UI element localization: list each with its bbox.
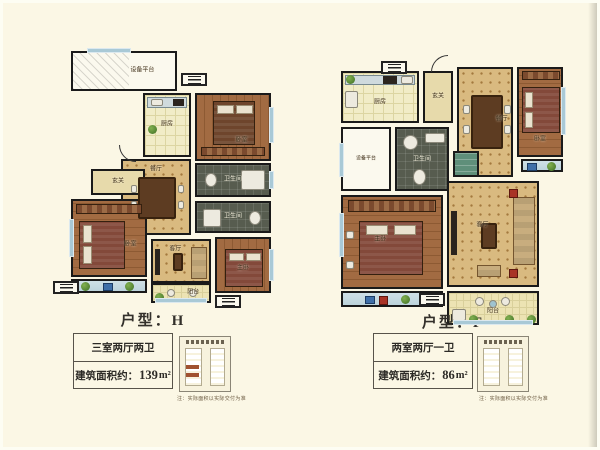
sink-icon	[401, 76, 413, 84]
chair-icon	[463, 105, 470, 114]
unit-location-chart-f	[477, 336, 529, 392]
room-foyer: 玄关	[423, 71, 453, 123]
flower-box	[71, 279, 147, 293]
pillow-icon	[525, 112, 533, 128]
spec-area: 建筑面积约：139m²	[74, 362, 172, 389]
bed-icon	[359, 221, 423, 275]
room-kitchen: 厨房	[143, 93, 191, 157]
room-living: 客厅	[151, 239, 211, 283]
room-label: 卧室	[125, 242, 137, 249]
room-label: 厨房	[161, 122, 173, 129]
shower-icon	[203, 209, 221, 227]
chair-icon	[178, 185, 184, 193]
decor-icon	[379, 296, 388, 305]
room-label: 设备平台	[356, 156, 376, 163]
room-label: 玄关	[112, 179, 124, 186]
decor-icon	[527, 163, 537, 171]
window-railing	[155, 298, 207, 303]
bathtub-icon	[241, 170, 265, 190]
disclaimer-note: 注：实际面积以实际交付为准	[479, 395, 548, 402]
wardrobe-icon	[201, 147, 265, 156]
room-label: 阳台	[187, 290, 199, 297]
plant-icon	[81, 282, 90, 291]
stack-column	[483, 348, 500, 386]
sofa-icon	[513, 197, 535, 265]
pillow-icon	[83, 225, 92, 243]
stove-icon	[173, 99, 184, 106]
tv-icon	[155, 249, 160, 275]
floor-plan-f: 厨房 玄关 餐厅 卧室	[335, 63, 567, 331]
wardrobe-icon	[348, 200, 436, 212]
fridge-icon	[345, 91, 358, 108]
room-master: 主卧	[341, 195, 443, 289]
room-label: 主卧	[374, 237, 386, 244]
room-kitchen: 厨房	[341, 71, 419, 123]
utility-cabinet-icon	[453, 151, 479, 177]
sofa-icon	[191, 247, 207, 279]
hatch-pattern	[73, 53, 129, 89]
disclaimer-note: 注：实际面积以实际交付为准	[177, 395, 246, 402]
side-table-icon	[509, 269, 518, 278]
room-living: 客厅	[447, 181, 539, 287]
chart-title-bar	[186, 340, 224, 344]
page-edge-shadow	[588, 3, 597, 447]
chair-icon	[501, 297, 510, 306]
room-bath-2: 卫生间	[195, 201, 271, 233]
room-bedroom: 卧室	[517, 67, 563, 157]
room-label: 阳台	[487, 308, 499, 315]
window	[69, 219, 74, 257]
table-icon	[489, 300, 497, 308]
room-label: 卫生间	[224, 177, 242, 184]
room-label: 卫生间	[224, 214, 242, 221]
area-label: 建筑面积约：	[75, 368, 138, 383]
pillow-icon	[525, 92, 533, 108]
stove-icon	[383, 76, 397, 84]
ac-unit-icon	[381, 61, 407, 74]
room-label: 卫生间	[413, 157, 431, 164]
room-label: 主卧	[237, 266, 249, 273]
room-label: 设备平台	[130, 68, 154, 75]
chart-title-bar	[484, 340, 522, 344]
dining-table-icon	[138, 177, 176, 219]
plant-icon	[148, 125, 157, 134]
spec-box-h: 三室两厅两卫 建筑面积约：139m²	[73, 333, 173, 389]
decor-icon	[365, 296, 375, 304]
room-label: 客厅	[169, 246, 181, 253]
coffee-table-icon	[173, 253, 183, 271]
pillow-icon	[217, 105, 234, 114]
ac-unit-icon	[419, 293, 445, 306]
tv-icon	[451, 211, 457, 255]
spec-rooms: 两室两厅一卫	[374, 334, 472, 362]
room-equipment-platform: 设备平台	[341, 127, 391, 191]
highlighted-unit	[186, 373, 199, 377]
ac-unit-icon	[53, 281, 79, 294]
chair-icon	[167, 289, 175, 297]
pillow-icon	[229, 253, 244, 261]
pillow-icon	[366, 225, 388, 235]
room-bath: 卫生间	[395, 127, 449, 191]
toilet-icon	[413, 169, 426, 185]
floor-plan-h: 设备平台 厨房 卧室 餐厅	[65, 45, 277, 305]
stack-column	[210, 348, 225, 386]
room-master: 主卧	[215, 237, 271, 293]
window	[339, 143, 344, 177]
plant-icon	[346, 75, 355, 84]
door-arc	[431, 55, 448, 72]
plant-icon	[401, 295, 410, 304]
window	[269, 249, 274, 281]
plant-icon	[547, 162, 556, 171]
area-value: 139	[139, 368, 158, 383]
chair-icon	[178, 201, 184, 209]
area-unit: m²	[159, 370, 171, 381]
chair-icon	[475, 297, 484, 306]
nightstand-icon	[346, 231, 354, 239]
spec-box-f: 两室两厅一卫 建筑面积约：86m²	[373, 333, 473, 389]
stack-column	[508, 348, 523, 386]
pillow-icon	[83, 246, 92, 264]
bed-icon	[79, 221, 125, 269]
pillow-icon	[246, 253, 261, 261]
spec-area: 建筑面积约：86m²	[374, 362, 472, 389]
room-label: 厨房	[374, 99, 386, 106]
room-label: 玄关	[432, 94, 444, 101]
spec-rooms: 三室两厅两卫	[74, 334, 172, 362]
decor-icon	[103, 283, 113, 291]
pillow-icon	[236, 105, 253, 114]
window-railing	[453, 320, 533, 325]
plant-icon	[125, 282, 134, 291]
room-bedroom-top: 卧室	[195, 93, 271, 161]
chair-icon	[463, 125, 470, 134]
side-table-icon	[509, 189, 518, 198]
highlighted-unit	[186, 365, 199, 369]
window	[561, 87, 566, 135]
window	[339, 213, 344, 257]
ac-unit-icon	[181, 73, 207, 86]
window	[269, 171, 274, 189]
wardrobe-icon	[76, 204, 142, 214]
room-equipment-platform: 设备平台	[71, 51, 177, 91]
room-bedroom-left: 卧室	[71, 199, 147, 277]
chair-icon	[131, 185, 137, 193]
window	[87, 48, 131, 53]
area-value: 86	[442, 368, 455, 383]
area-unit: m²	[456, 370, 468, 381]
pillow-icon	[394, 225, 416, 235]
window	[269, 107, 274, 143]
chair-icon	[504, 125, 511, 134]
bed-icon	[522, 87, 560, 133]
toilet-icon	[249, 211, 261, 225]
room-label: 餐厅	[496, 116, 508, 123]
sink-icon	[151, 99, 163, 106]
armchair-icon	[477, 265, 501, 277]
room-label: 卧室	[236, 138, 248, 145]
washer-icon	[403, 135, 418, 150]
chair-icon	[504, 105, 511, 114]
sink-icon	[425, 133, 445, 143]
room-label: 餐厅	[150, 166, 162, 173]
flower-box	[521, 159, 563, 172]
toilet-icon	[205, 173, 217, 187]
unit-title-h: 户型：H	[121, 309, 186, 330]
wardrobe-icon	[522, 71, 560, 80]
unit-location-chart-h	[179, 336, 231, 392]
room-label: 客厅	[476, 222, 488, 229]
area-label: 建筑面积约：	[378, 368, 441, 383]
bed-icon	[213, 101, 255, 145]
room-bath-1: 卫生间	[195, 163, 271, 197]
room-label: 卧室	[534, 136, 546, 143]
brochure-page: 设备平台 厨房 卧室 餐厅	[0, 0, 600, 450]
nightstand-icon	[346, 261, 354, 269]
ac-unit-icon	[215, 295, 241, 308]
